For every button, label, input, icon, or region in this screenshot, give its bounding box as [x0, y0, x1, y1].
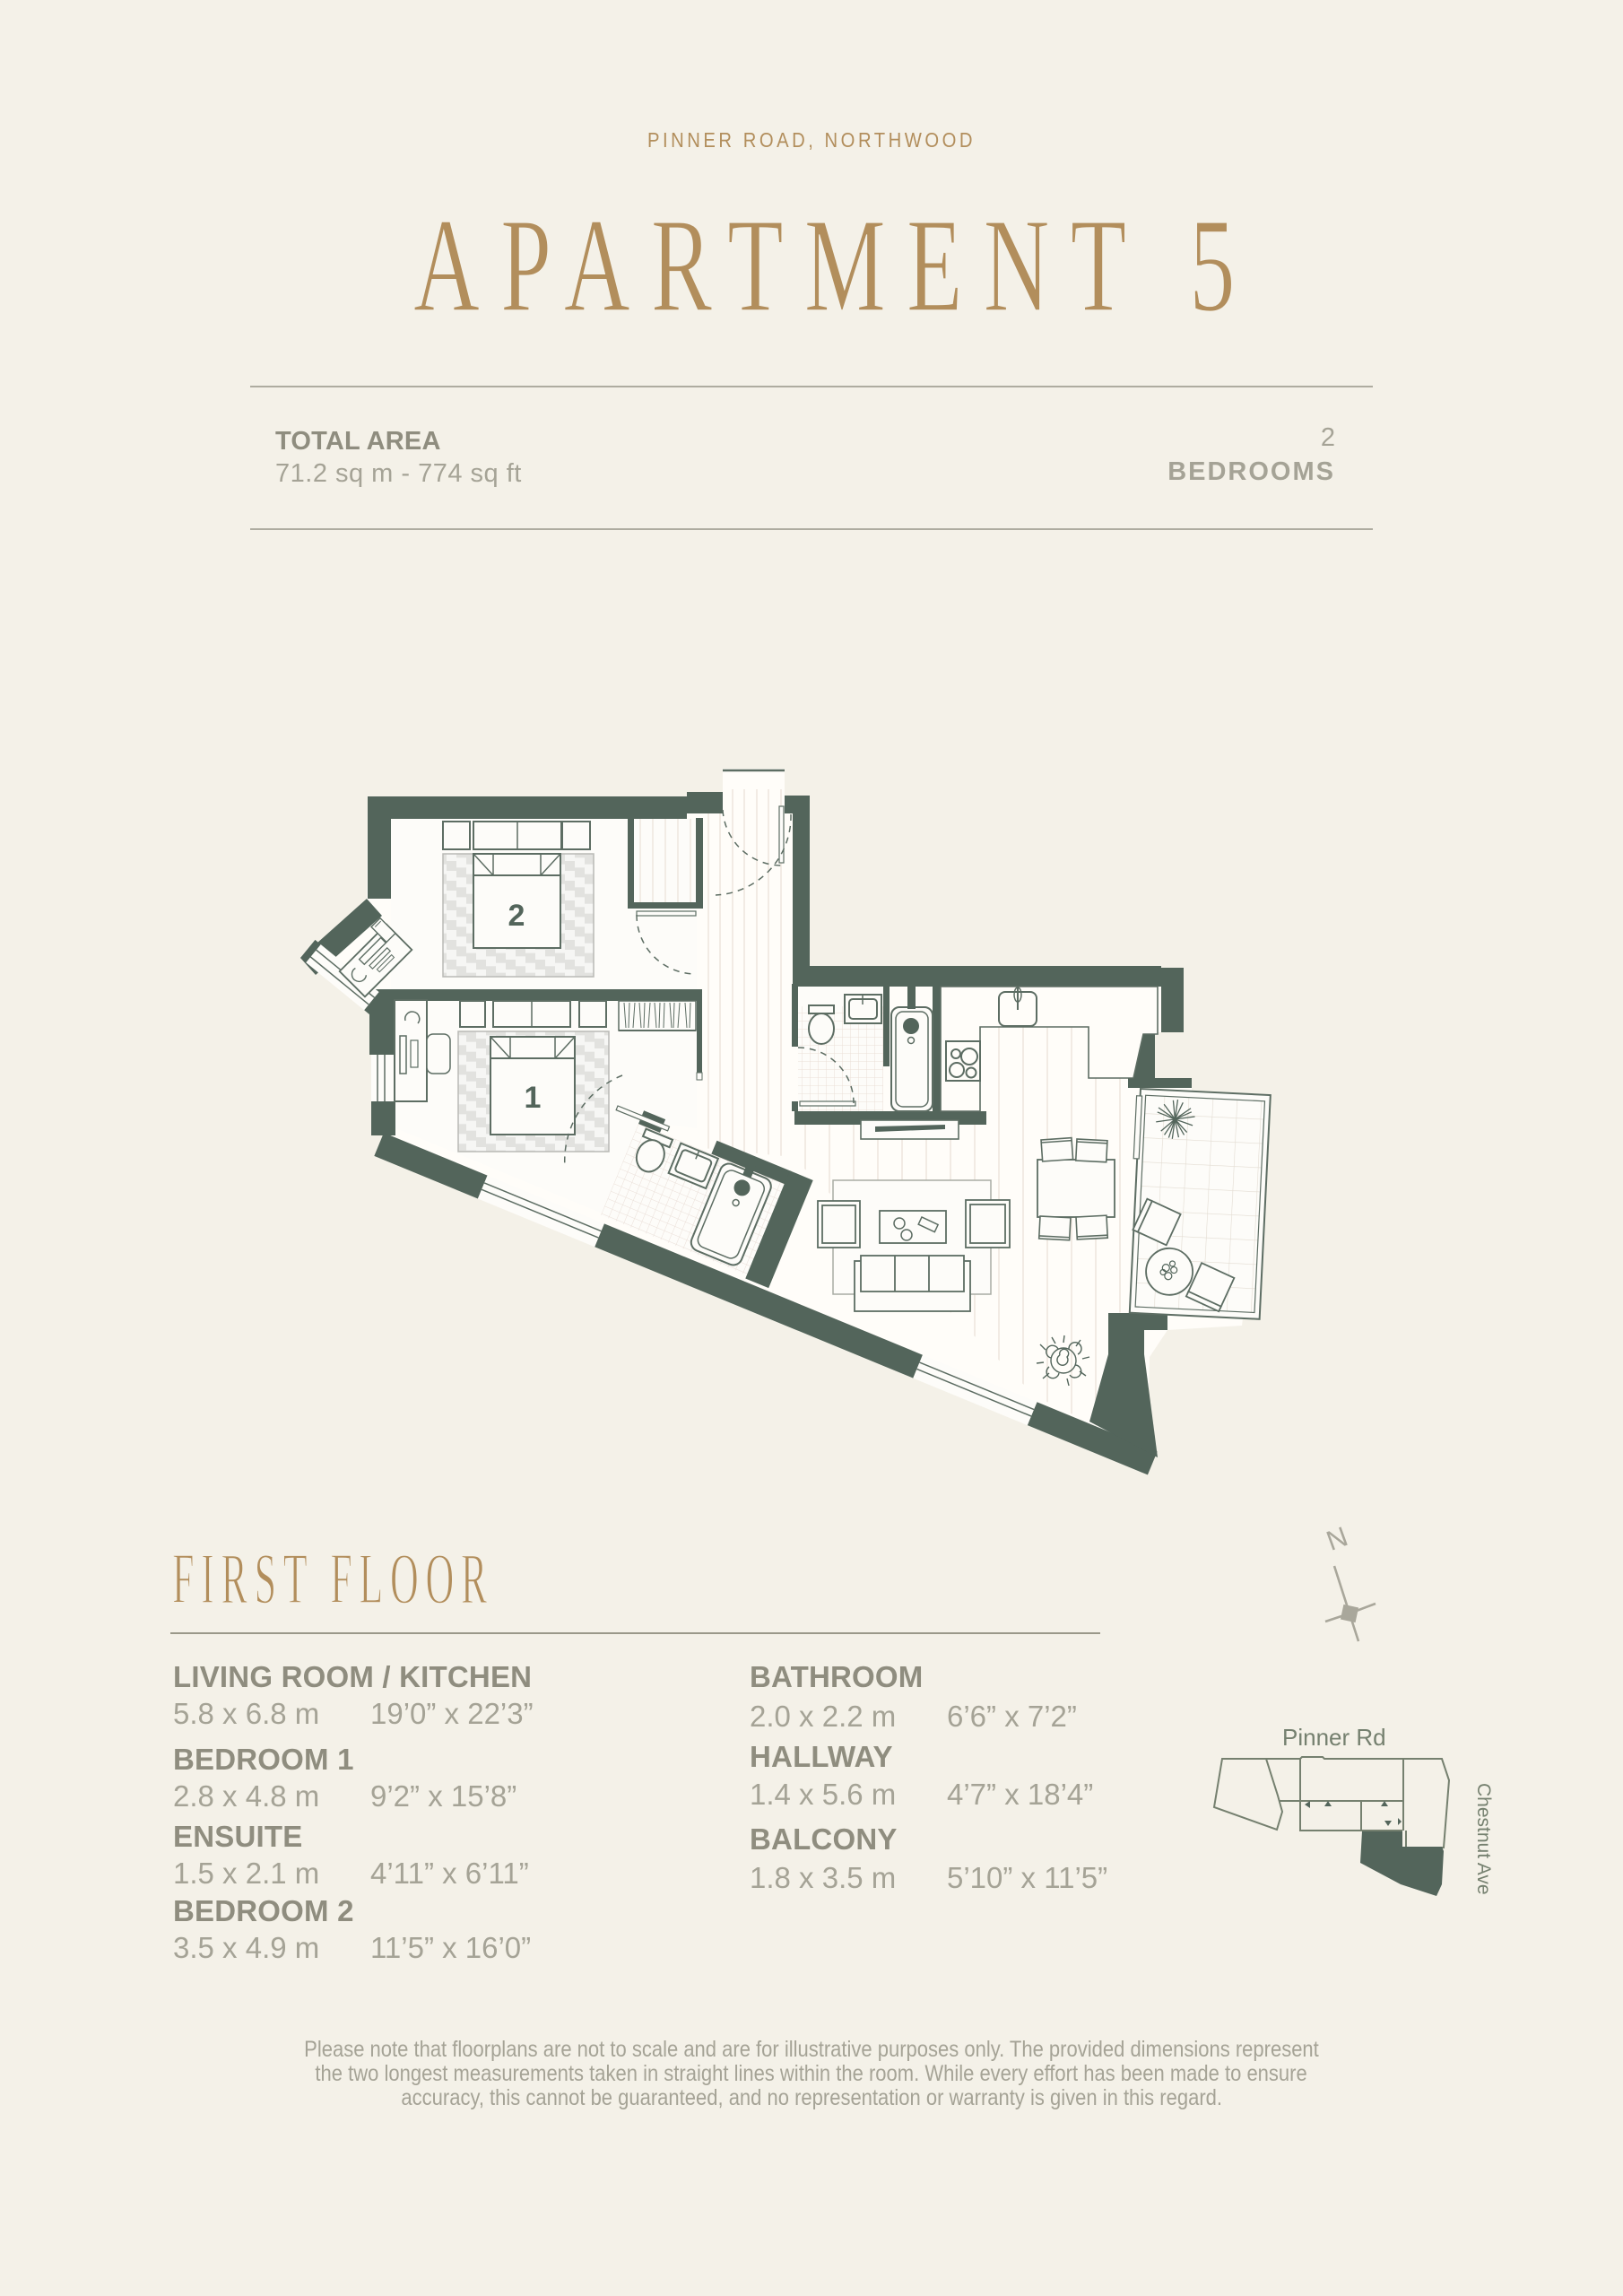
- svg-text:N: N: [1323, 1520, 1352, 1557]
- svg-text:Pinner Rd: Pinner Rd: [1282, 1724, 1386, 1751]
- svg-text:2: 2: [508, 899, 525, 933]
- svg-text:1: 1: [525, 1081, 542, 1115]
- svg-text:Chestnut Ave: Chestnut Ave: [1473, 1783, 1494, 1895]
